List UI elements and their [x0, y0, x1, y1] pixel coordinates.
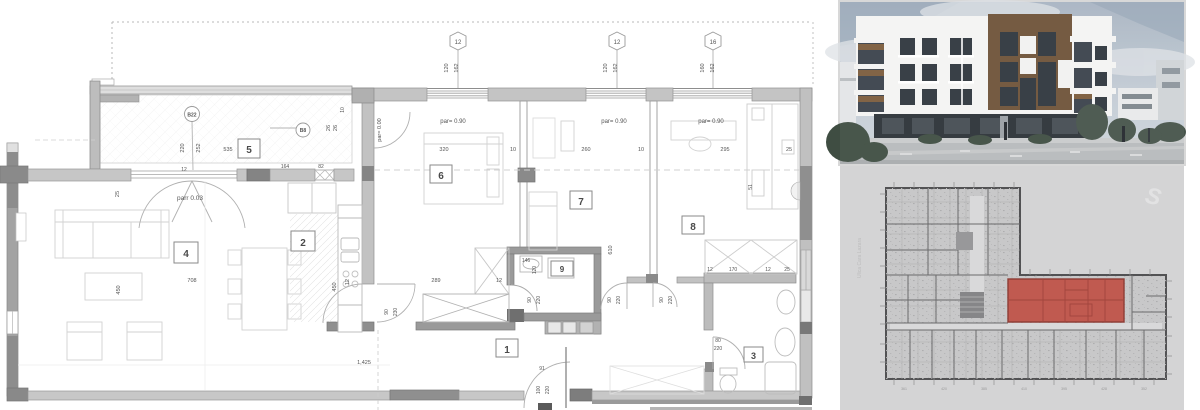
svg-text:4: 4 [183, 249, 189, 260]
svg-text:10: 10 [340, 107, 346, 113]
svg-text:9: 9 [560, 265, 565, 274]
svg-text:120: 120 [532, 266, 538, 275]
svg-text:708: 708 [187, 278, 196, 284]
svg-text:162: 162 [710, 63, 716, 72]
svg-text:352: 352 [1141, 387, 1147, 391]
svg-text:8: 8 [690, 222, 696, 233]
svg-text:par= 0.90: par= 0.90 [601, 119, 627, 125]
svg-text:B8: B8 [300, 128, 307, 134]
svg-text:220: 220 [545, 386, 551, 395]
svg-text:170: 170 [729, 267, 738, 273]
svg-text:385: 385 [981, 387, 987, 391]
svg-text:162: 162 [613, 63, 619, 72]
svg-text:16: 16 [710, 40, 717, 46]
svg-text:120: 120 [444, 63, 450, 72]
svg-text:164: 164 [281, 164, 290, 170]
svg-text:6: 6 [438, 171, 444, 182]
svg-text:220: 220 [536, 296, 542, 305]
svg-text:289: 289 [431, 278, 440, 284]
svg-text:parr 0.03: parr 0.03 [177, 195, 203, 202]
svg-text:1,425: 1,425 [357, 360, 371, 366]
svg-text:410: 410 [1021, 387, 1027, 391]
svg-text:par= 0.90: par= 0.90 [698, 119, 724, 125]
svg-text:220: 220 [668, 296, 674, 305]
svg-text:260: 260 [581, 147, 590, 153]
svg-text:1: 1 [504, 345, 510, 356]
svg-text:26: 26 [326, 125, 332, 131]
svg-text:90: 90 [659, 297, 665, 303]
svg-text:610: 610 [608, 245, 614, 254]
svg-text:80: 80 [715, 338, 721, 344]
svg-text:82: 82 [318, 164, 324, 170]
svg-text:7: 7 [578, 197, 584, 208]
svg-text:120: 120 [603, 63, 609, 72]
svg-text:10: 10 [510, 147, 516, 153]
svg-text:B22: B22 [187, 113, 196, 119]
svg-text:26: 26 [333, 125, 339, 131]
svg-text:450: 450 [332, 282, 338, 291]
svg-text:90: 90 [527, 297, 533, 303]
svg-text:100: 100 [536, 386, 542, 395]
svg-text:146: 146 [522, 258, 531, 264]
svg-text:420: 420 [941, 387, 947, 391]
svg-text:90: 90 [384, 309, 390, 315]
svg-text:160: 160 [700, 63, 706, 72]
svg-text:395: 395 [1061, 387, 1067, 391]
svg-text:25: 25 [115, 191, 121, 197]
svg-text:12: 12 [765, 267, 771, 273]
svg-text:12: 12 [455, 40, 462, 46]
svg-text:90: 90 [607, 297, 613, 303]
svg-text:25: 25 [784, 267, 790, 273]
svg-text:12: 12 [496, 278, 502, 284]
svg-text:12: 12 [614, 40, 621, 46]
svg-text:162: 162 [454, 63, 460, 72]
svg-text:220: 220 [714, 346, 723, 352]
svg-text:450: 450 [116, 285, 122, 294]
svg-text:10: 10 [638, 147, 644, 153]
svg-text:par= 0.00: par= 0.00 [377, 118, 383, 141]
svg-text:12: 12 [707, 267, 713, 273]
svg-text:220: 220 [616, 296, 622, 305]
svg-text:428: 428 [1101, 387, 1107, 391]
svg-text:Ulica Cara Lazara: Ulica Cara Lazara [857, 238, 863, 278]
svg-text:320: 320 [439, 147, 448, 153]
svg-text:535: 535 [223, 147, 232, 153]
svg-text:12: 12 [345, 279, 351, 285]
svg-text:361: 361 [901, 387, 907, 391]
svg-text:25: 25 [786, 147, 792, 153]
svg-text:5: 5 [246, 145, 252, 156]
svg-text:295: 295 [720, 147, 729, 153]
svg-text:3: 3 [751, 351, 756, 361]
svg-text:230: 230 [393, 308, 399, 317]
svg-text:252: 252 [196, 143, 202, 152]
svg-text:91: 91 [539, 366, 545, 372]
svg-text:51: 51 [748, 184, 754, 190]
svg-text:12: 12 [181, 167, 187, 173]
svg-text:2: 2 [300, 238, 306, 249]
svg-text:220: 220 [180, 143, 186, 152]
svg-text:par= 0.90: par= 0.90 [440, 119, 466, 125]
